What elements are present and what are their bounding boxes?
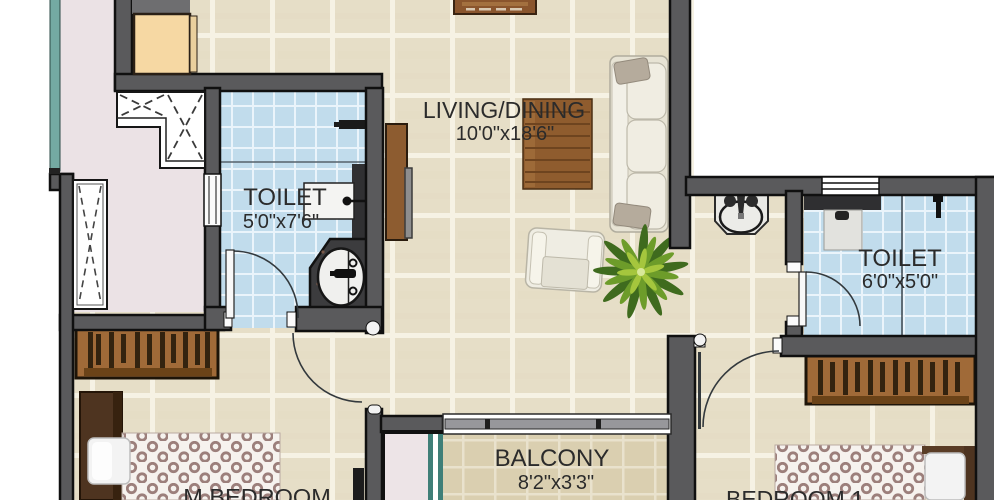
svg-text:M.BEDROOM: M.BEDROOM bbox=[183, 484, 331, 500]
svg-text:10'0"x18'6": 10'0"x18'6" bbox=[456, 123, 555, 145]
svg-text:TOILET: TOILET bbox=[243, 184, 327, 211]
svg-text:5'0"x7'6": 5'0"x7'6" bbox=[243, 211, 319, 233]
svg-text:BALCONY: BALCONY bbox=[495, 445, 610, 472]
svg-text:LIVING/DINING: LIVING/DINING bbox=[423, 97, 585, 123]
svg-text:BEDROOM 1: BEDROOM 1 bbox=[726, 486, 864, 500]
svg-text:TOILET: TOILET bbox=[858, 245, 942, 272]
svg-text:6'0"x5'0": 6'0"x5'0" bbox=[862, 271, 938, 293]
svg-text:8'2"x3'3": 8'2"x3'3" bbox=[518, 472, 594, 494]
